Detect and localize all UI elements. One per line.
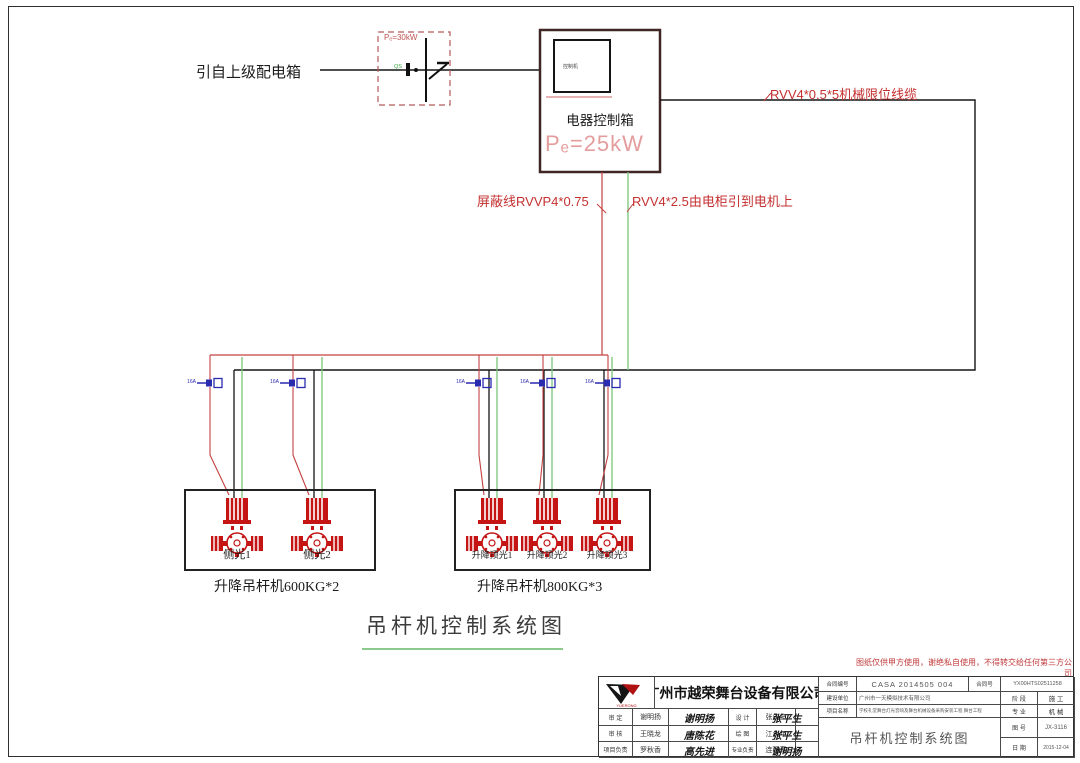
serial-no-value: YX00HTS02511258 bbox=[1001, 677, 1075, 692]
shield-cable-tails bbox=[210, 387, 608, 495]
plug-rating-label: 16A bbox=[554, 379, 594, 385]
motor-label: 升降顶光3 bbox=[587, 548, 628, 561]
left-group-caption: 升降吊杆机600KG*2 bbox=[214, 576, 339, 596]
sign-label: 审 核 bbox=[599, 726, 633, 742]
plug-rating-label: 16A bbox=[239, 379, 279, 385]
signature-cell bbox=[669, 726, 729, 742]
signature-cell bbox=[796, 726, 819, 742]
drawing-sheet: 引自上级配电箱 Pₑ=30kW QS 控制机 电器控制箱 Pₑ=25kW RVV… bbox=[0, 0, 1080, 763]
client-value: 广州市一天模拟技术有限公司 bbox=[857, 692, 1001, 705]
sign-name: 罗秋香 bbox=[633, 742, 669, 758]
cable-plug-icon bbox=[595, 379, 620, 388]
stage-value: 施 工 bbox=[1038, 692, 1075, 705]
control-box-power: Pₑ=25kW bbox=[545, 131, 644, 157]
block-drawing-title: 吊杆机控制系统图 bbox=[819, 718, 1001, 758]
client-label: 建设单位 bbox=[819, 692, 857, 705]
shield-cable-drops bbox=[210, 355, 608, 380]
logo-cell: YUERONG bbox=[599, 677, 655, 709]
motor-label: 升降顶光1 bbox=[472, 548, 513, 561]
sign-label: 审 定 bbox=[599, 709, 633, 726]
date-value: 2015-12-04 bbox=[1038, 738, 1075, 758]
sign-name: 张先生 bbox=[757, 709, 796, 726]
sign-label: 绘 图 bbox=[729, 726, 757, 742]
main-title-underline bbox=[362, 648, 563, 650]
project-label: 项目名称 bbox=[819, 705, 857, 718]
control-box-name: 电器控制箱 bbox=[540, 109, 660, 129]
sign-label: 专业负责 bbox=[729, 742, 757, 758]
cable-plug-icon bbox=[280, 379, 305, 388]
motor-cable-label: RVV4*2.5由电柜引到电机上 bbox=[632, 191, 793, 210]
date-label: 日 期 bbox=[1001, 738, 1038, 758]
company-name-cell: 广州市越荣舞台设备有限公司 bbox=[655, 677, 819, 709]
signature-cell bbox=[669, 742, 729, 758]
main-title: 吊杆机控制系统图 bbox=[366, 610, 566, 640]
sign-name: 谢明扬 bbox=[633, 709, 669, 726]
contract-no-value: CASA 2014505 004 bbox=[857, 677, 969, 692]
left-hoist-group-box bbox=[185, 490, 375, 570]
right-group-caption: 升降吊杆机800KG*3 bbox=[477, 576, 602, 596]
limit-cable-label: RVV4*0.5*5机械限位线缆 bbox=[770, 84, 917, 103]
source-label: 引自上级配电箱 bbox=[196, 61, 301, 82]
logo-text: YUERONG bbox=[599, 703, 654, 708]
plug-rating-label: 16A bbox=[425, 379, 465, 385]
plug-rating-label: 16A bbox=[489, 379, 529, 385]
sign-label: 项目负责 bbox=[599, 742, 633, 758]
shield-cable-label: 屏蔽线RVVP4*0.75 bbox=[477, 191, 589, 210]
stage-label: 阶 段 bbox=[1001, 692, 1038, 705]
sign-name: 江大年 bbox=[757, 726, 796, 742]
motor-label: 侧光1 bbox=[223, 546, 251, 562]
signature-cell bbox=[669, 709, 729, 726]
project-value: 学校礼堂舞台灯光音响及舞台机械设备采购安装工程 舞台工程 bbox=[857, 705, 1001, 718]
serial-no-label: 合同号 bbox=[969, 677, 1001, 692]
signature-cell bbox=[796, 742, 819, 758]
motor-label: 升降顶光2 bbox=[527, 548, 568, 561]
major-value: 机 械 bbox=[1038, 705, 1075, 718]
sign-label: 设 计 bbox=[729, 709, 757, 726]
signature-cell bbox=[796, 709, 819, 726]
company-name: 广州市越荣舞台设备有限公司 bbox=[655, 683, 819, 703]
breaker-power-label: Pₑ=30kW bbox=[384, 33, 417, 42]
breaker-enclosure bbox=[378, 32, 450, 105]
cable-plug-icon bbox=[197, 379, 222, 388]
breaker-tag: QS bbox=[394, 64, 402, 70]
cable-plug-icon bbox=[530, 379, 555, 388]
figno-label: 图 号 bbox=[1001, 718, 1038, 738]
cable-plug-icon bbox=[466, 379, 491, 388]
major-label: 专 业 bbox=[1001, 705, 1038, 718]
sign-name: 连理真 bbox=[757, 742, 796, 758]
sign-name: 王晓龙 bbox=[633, 726, 669, 742]
title-block: YUERONG 广州市越荣舞台设备有限公司 审 定 谢明扬 谢明扬 设 计 张先… bbox=[598, 676, 1074, 757]
motor-label: 侧光2 bbox=[303, 546, 331, 562]
inner-module-label: 控制机 bbox=[563, 63, 578, 70]
contract-no-label: 合同编号 bbox=[819, 677, 857, 692]
plug-rating-label: 16A bbox=[156, 379, 196, 385]
figno-value: JX-3116 bbox=[1038, 718, 1075, 738]
motor-power-drops bbox=[234, 370, 604, 498]
